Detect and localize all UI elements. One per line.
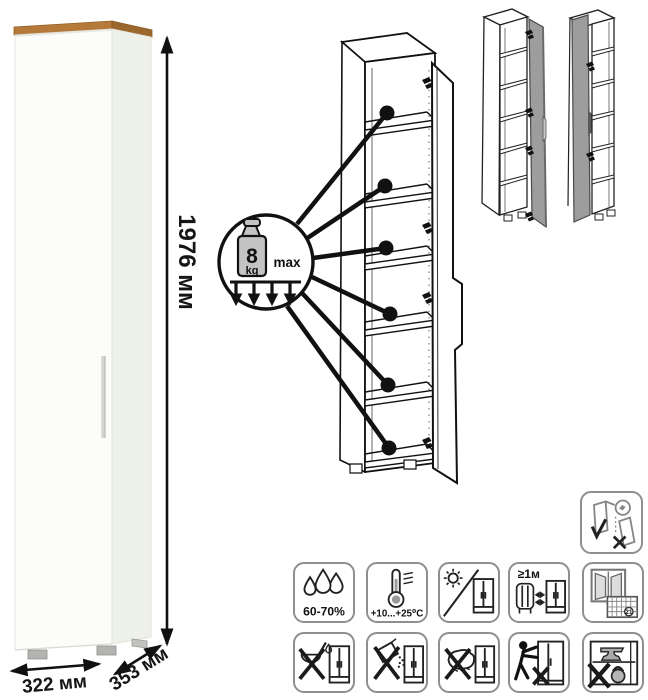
cabinet-photo-with-dimensions: 1976 мм 322 мм 353 мм <box>0 0 210 700</box>
humidity-icon: 60-70% <box>293 562 355 623</box>
wardrobe-glyph <box>546 580 565 612</box>
no-dragging-icon <box>508 632 570 693</box>
load-qualifier: max <box>273 255 301 270</box>
x-mark <box>533 667 548 684</box>
radiator-icon <box>517 583 534 613</box>
foot-right <box>97 646 116 655</box>
wall-anchoring-art <box>585 496 639 550</box>
temperature-icon: +10...+25⁰C <box>366 562 428 623</box>
diagram-foot-right <box>404 460 416 469</box>
temperature-label: +10...+25⁰C <box>371 608 424 619</box>
no-direct-sunlight-icon <box>438 562 500 623</box>
width-arrow <box>12 664 99 671</box>
open-door <box>432 63 462 483</box>
wardrobe-glyph <box>404 646 423 682</box>
diagram-foot-left <box>350 464 362 473</box>
x-mark <box>300 649 324 679</box>
no-abrasives-art <box>369 636 425 690</box>
distance-label: ≥1м <box>518 567 540 581</box>
gray-door-left <box>572 15 590 222</box>
no-dragging-art <box>511 636 567 690</box>
person-pushing-icon <box>516 641 537 679</box>
wall-anchoring-icon <box>580 491 643 554</box>
spacing-arrows <box>536 593 543 604</box>
product-sheet: 1976 мм 322 мм 353 мм <box>0 0 648 700</box>
width-dimension-label: 322 мм <box>21 671 88 698</box>
humidity-label: 60-70% <box>303 604 345 618</box>
door-side-variants <box>474 2 648 238</box>
no-sharp-objects-icon <box>293 632 355 693</box>
height-dimension-label: 1976 мм <box>173 214 200 310</box>
heat-distance-icon: ≥1м <box>508 562 570 623</box>
foot-side <box>132 639 147 648</box>
shelf-load-diagram: 8 kg max <box>198 10 468 505</box>
variant-door-left <box>568 10 615 222</box>
heat-distance-art: ≥1м <box>511 566 567 620</box>
cabinet-front-face <box>15 29 112 650</box>
sunlight-art <box>441 566 497 620</box>
cabinet-side-face <box>112 29 151 644</box>
no-sharp-objects-art <box>296 636 352 690</box>
calendar-icon: 21 <box>607 596 637 616</box>
wardrobe-glyph <box>330 646 350 682</box>
kettlebell-icon <box>612 667 625 682</box>
wardrobe-glyph <box>474 579 494 613</box>
humidity-art: 60-70% <box>296 566 352 620</box>
sun-icon <box>449 573 458 582</box>
temperature-art: +10...+25⁰C <box>369 566 425 620</box>
no-harsh-cleaning-icon <box>438 632 500 693</box>
window-sash-left <box>595 573 605 599</box>
no-abrasive-powders-icon <box>366 632 428 693</box>
ventilation-icon: 21 <box>582 562 644 623</box>
variant-door-right <box>482 9 546 227</box>
no-overloading-art <box>585 636 641 690</box>
no-harsh-cleaning-art <box>441 636 497 690</box>
no-overloading-icon <box>582 632 644 693</box>
wardrobe-glyph <box>476 646 495 682</box>
ventilation-art: 21 <box>585 566 641 620</box>
window-sash-right <box>611 573 621 599</box>
door-handle-notch <box>543 117 546 141</box>
calendar-day: 21 <box>625 608 633 615</box>
foot-left <box>28 650 47 659</box>
load-unit: kg <box>246 265 259 277</box>
